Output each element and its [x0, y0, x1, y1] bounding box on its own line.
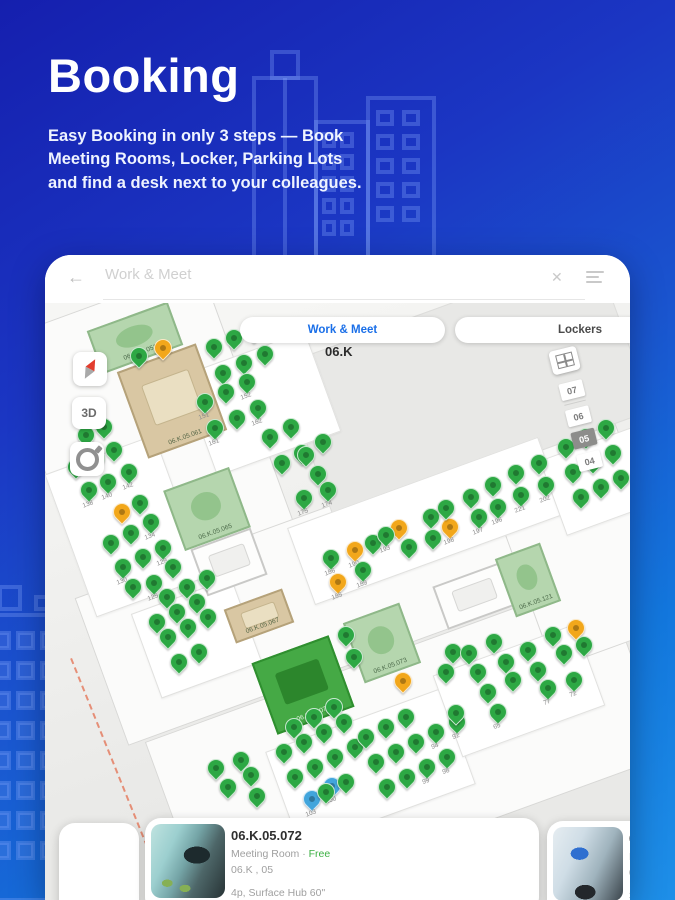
- close-icon: ✕: [551, 269, 563, 285]
- room-photo-thumbnail: [151, 824, 225, 898]
- map-pin-free[interactable]: [373, 714, 398, 739]
- desk-number: 202: [533, 492, 556, 506]
- tab-bar: Work & MeetLockers: [240, 317, 630, 343]
- search-underline: [103, 299, 585, 300]
- promo-screen: Booking Easy Booking in only 3 steps — B…: [0, 0, 675, 900]
- locker-grid-button[interactable]: [548, 345, 581, 375]
- room-photo-thumbnail: [553, 827, 623, 900]
- map-pin-partial[interactable]: [390, 668, 415, 693]
- room-card-left-partial[interactable]: [59, 823, 139, 900]
- floor-button-05[interactable]: 05: [570, 427, 597, 449]
- tab-work-meet[interactable]: Work & Meet: [240, 317, 445, 343]
- app-screenshot-card: 06.K.05.05106.K.05.06106.K.05.06506.K.05…: [45, 255, 630, 900]
- desk-number: 174: [315, 497, 338, 511]
- desk-number: 142: [116, 479, 139, 493]
- desk-number: 92: [444, 729, 467, 743]
- map-stamp-button[interactable]: [70, 442, 104, 476]
- map-pin-free[interactable]: [201, 334, 226, 359]
- hero-subtitle: Easy Booking in only 3 steps — BookMeeti…: [48, 125, 362, 195]
- map-pin-free[interactable]: [166, 649, 191, 674]
- map-pin-free[interactable]: [322, 744, 347, 769]
- desk-number: 72: [561, 687, 584, 701]
- floor-button-07[interactable]: 07: [558, 379, 585, 401]
- map-pin-free[interactable]: [282, 764, 307, 789]
- search-input[interactable]: [103, 265, 477, 284]
- map-pin-free[interactable]: [588, 474, 613, 499]
- hero-subtitle-line: and find a desk next to your colleagues.: [48, 172, 362, 195]
- room-card-text: 06.K.05.072 Meeting Room · Free 06.K , 0…: [231, 818, 330, 900]
- hero-subtitle-line: Easy Booking in only 3 steps — Book: [48, 125, 362, 148]
- desk-number: 175: [291, 505, 314, 519]
- hero-subtitle-line: Meeting Rooms, Locker, Parking Lots: [48, 148, 362, 171]
- room-card-equipment: 4p, Surface Hub 60": [231, 886, 330, 900]
- desk-number: 189: [350, 577, 373, 591]
- floor-button-06[interactable]: 06: [565, 405, 592, 427]
- back-arrow-icon: ←: [67, 267, 85, 287]
- map-pin-free[interactable]: [608, 465, 630, 490]
- floor-button-04[interactable]: 04: [576, 450, 603, 472]
- map-stamp-icon: [76, 448, 99, 471]
- map-pin-free[interactable]: [333, 622, 358, 647]
- locker-grid-icon: [555, 352, 575, 370]
- map-pin-free[interactable]: [480, 472, 505, 497]
- map-pin-free[interactable]: [383, 739, 408, 764]
- map-pin-free[interactable]: [278, 414, 303, 439]
- room-card-location: 06.K , 05: [231, 863, 330, 879]
- map-pin-free[interactable]: [257, 424, 282, 449]
- filter-button[interactable]: [586, 271, 604, 285]
- desk-number: 196: [485, 514, 508, 528]
- map-pin-free[interactable]: [458, 484, 483, 509]
- room-card-location: 06.K: [629, 866, 630, 882]
- desk-number: 161: [202, 435, 225, 449]
- desk-number: 221: [508, 502, 531, 516]
- desk-number: 99: [414, 774, 437, 788]
- compass-button[interactable]: [73, 352, 107, 386]
- map-pin-free[interactable]: [374, 774, 399, 799]
- map-pin-free[interactable]: [363, 749, 388, 774]
- map-pin-free[interactable]: [126, 343, 151, 368]
- filter-icon: [586, 271, 604, 283]
- compass-icon: [80, 357, 99, 381]
- map-pin-free[interactable]: [302, 754, 327, 779]
- map-pin-free[interactable]: [503, 460, 528, 485]
- map-pin-free[interactable]: [568, 484, 593, 509]
- map-pin-free[interactable]: [252, 341, 277, 366]
- desk-number: 185: [325, 589, 348, 603]
- 3d-button[interactable]: 3D: [72, 397, 106, 429]
- clear-button[interactable]: ✕: [551, 269, 563, 286]
- map-pin-free[interactable]: [244, 783, 269, 808]
- map-pin-free[interactable]: [271, 739, 296, 764]
- map-pin-free[interactable]: [269, 450, 294, 475]
- back-button[interactable]: ←: [67, 267, 85, 288]
- desk-number: 98: [434, 764, 457, 778]
- room-type: Meeting Room: [231, 848, 299, 860]
- map-pin-free[interactable]: [215, 774, 240, 799]
- desk-number: 162: [245, 415, 268, 429]
- desk-number: 197: [466, 524, 489, 538]
- map-pin-partial[interactable]: [150, 335, 175, 360]
- map-pin-free[interactable]: [433, 659, 458, 684]
- search-bar: ← ✕: [45, 255, 630, 303]
- room-card-main[interactable]: 06.K.05.072 Meeting Room · Free 06.K , 0…: [145, 818, 539, 900]
- 3d-button-label: 3D: [81, 406, 96, 420]
- room-card-text: 06.K Meet 06.K 32" T: [629, 821, 630, 900]
- status-badge: Free: [309, 848, 331, 860]
- map-pin-free[interactable]: [526, 450, 551, 475]
- room-card-right-partial[interactable]: 06.K Meet 06.K 32" T: [547, 821, 630, 900]
- room-card-type: Meet: [629, 850, 630, 866]
- room-card-carousel: 06.K.05.072 Meeting Room · Free 06.K , 0…: [45, 818, 630, 900]
- room-card-type-status: Meeting Room · Free: [231, 847, 330, 863]
- map-pin-free[interactable]: [98, 530, 123, 555]
- map-pin-free[interactable]: [393, 704, 418, 729]
- separator: ·: [299, 848, 308, 860]
- map-pin-free[interactable]: [481, 629, 506, 654]
- hero-section: Booking Easy Booking in only 3 steps — B…: [48, 48, 362, 195]
- desk-number: 140: [95, 489, 118, 503]
- room-card-title: 06.K.05.072: [231, 828, 330, 843]
- map-pin-free[interactable]: [515, 637, 540, 662]
- room-card-equipment: 32" T: [629, 889, 630, 900]
- room-card-title: 06.K: [629, 831, 630, 846]
- map-pin-free[interactable]: [341, 644, 366, 669]
- desk-number: 65: [485, 719, 508, 733]
- floor-label: 06.K: [325, 344, 352, 359]
- tab-lockers[interactable]: Lockers: [455, 317, 630, 343]
- desk-number: 77: [535, 695, 558, 709]
- map-pin-free[interactable]: [194, 565, 219, 590]
- map-pin-free[interactable]: [186, 639, 211, 664]
- page-title: Booking: [48, 48, 362, 103]
